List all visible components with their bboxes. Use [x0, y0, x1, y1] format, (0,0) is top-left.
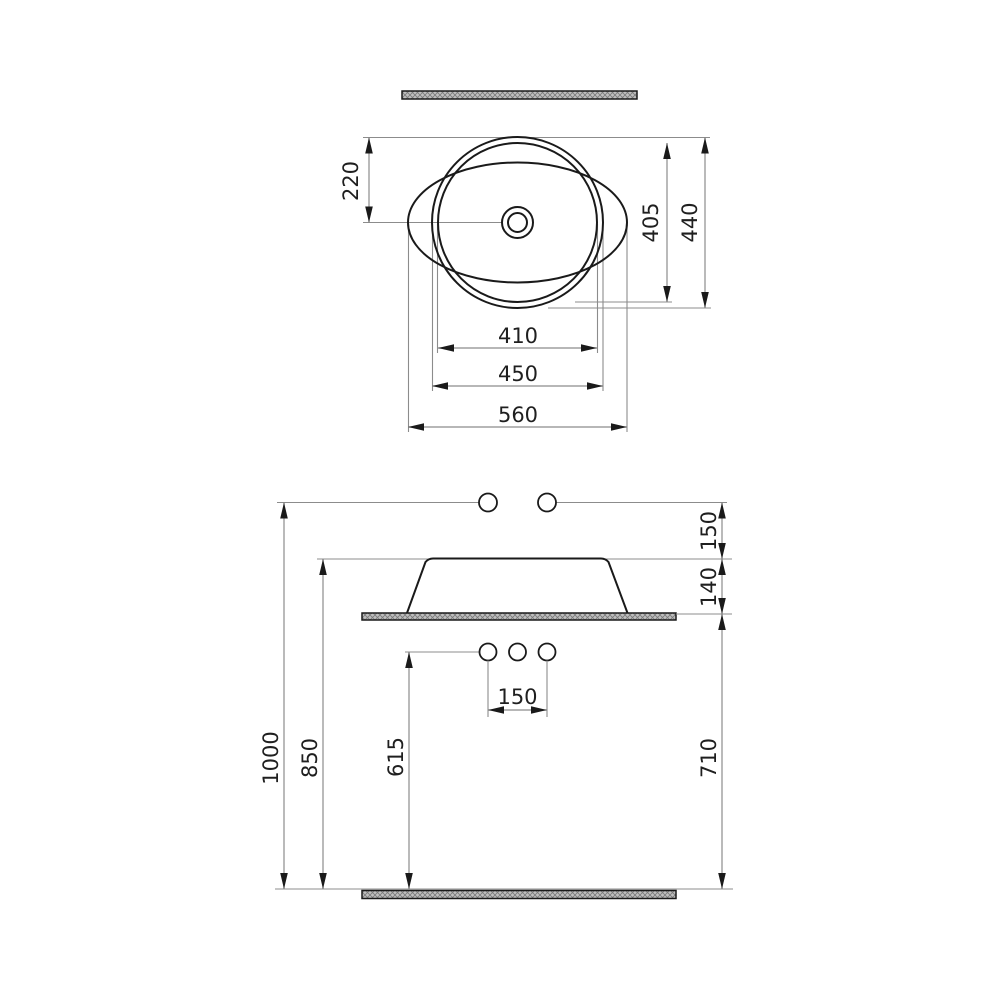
- dim-label-440: 440: [678, 202, 702, 242]
- dim-label-150-top: 150: [697, 511, 721, 551]
- dim-label-405: 405: [639, 202, 663, 242]
- dim-label-410: 410: [498, 324, 538, 348]
- faucet-hole-right: [538, 494, 556, 512]
- dim-label-850: 850: [298, 738, 322, 778]
- countertop-hatch-bar: [362, 613, 676, 620]
- top-view-wall-hatch-bar: [402, 91, 637, 99]
- mounting-hole-right: [539, 644, 556, 661]
- drain-inner-circle: [508, 213, 527, 232]
- dim-label-140: 140: [697, 567, 721, 607]
- floor-hatch-bar: [362, 891, 676, 899]
- mounting-hole-center: [509, 644, 526, 661]
- dim-label-710: 710: [697, 738, 721, 778]
- dim-label-150-holes: 150: [497, 685, 537, 709]
- mounting-hole-left: [480, 644, 497, 661]
- dim-label-1000: 1000: [259, 731, 283, 784]
- side-view: 1000 850 615 150 150 140 710: [259, 494, 733, 899]
- faucet-hole-left: [479, 494, 497, 512]
- basin-side-profile: [407, 559, 628, 614]
- washbasin-dimension-drawing: 220 405 440 410 450 560: [0, 0, 990, 990]
- drain-outer-circle: [502, 207, 533, 238]
- dim-label-450: 450: [498, 362, 538, 386]
- top-view: 220 405 440 410 450 560: [339, 91, 711, 432]
- dim-label-615: 615: [384, 737, 408, 777]
- dim-label-220: 220: [339, 161, 363, 201]
- technical-drawing-page: 220 405 440 410 450 560: [0, 0, 990, 990]
- dim-label-560: 560: [498, 403, 538, 427]
